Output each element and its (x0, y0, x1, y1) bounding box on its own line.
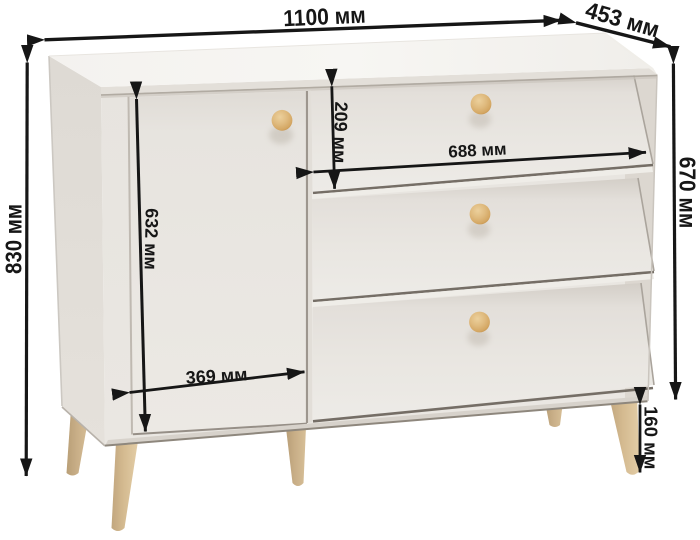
svg-text:160 мм: 160 мм (641, 406, 662, 469)
svg-text:688 мм: 688 мм (448, 139, 507, 161)
svg-text:209 мм: 209 мм (330, 101, 352, 163)
svg-text:632 мм: 632 мм (141, 208, 162, 270)
svg-text:670 мм: 670 мм (674, 157, 700, 229)
svg-text:369 мм: 369 мм (185, 364, 248, 388)
svg-text:1100 мм: 1100 мм (283, 2, 367, 32)
svg-text:830 мм: 830 мм (1, 204, 27, 274)
